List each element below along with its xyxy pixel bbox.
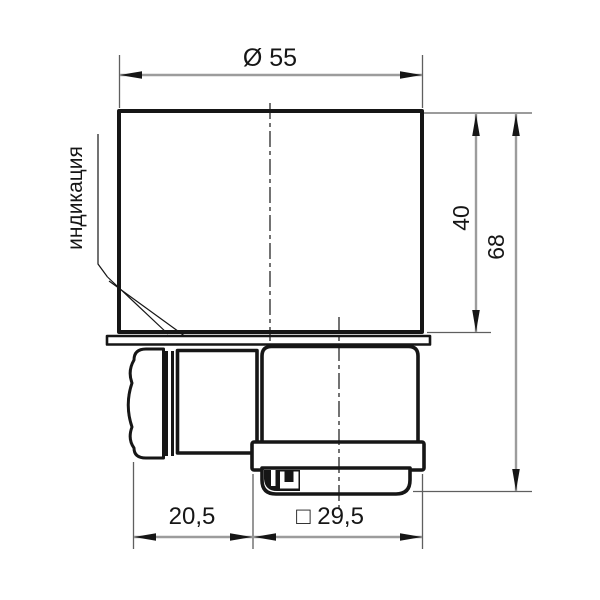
dimension-diameter: Ø 55 xyxy=(120,44,423,108)
dim-gland-offset-label: 20,5 xyxy=(169,503,216,530)
indication-label: индикация xyxy=(64,146,87,250)
cable-gland-nut xyxy=(128,349,163,458)
connector-flange xyxy=(252,442,424,470)
cable-gland-body xyxy=(178,351,258,454)
sensor-dimension-drawing: индикация Ø 55 40 68 20,5 xyxy=(0,0,600,600)
connector-keyway xyxy=(264,470,300,491)
dim-body-height-label: 40 xyxy=(448,205,474,231)
dim-connector-square-label: □ 29,5 xyxy=(296,503,364,530)
cable-gland-washer xyxy=(167,351,173,456)
technical-drawing: индикация Ø 55 40 68 20,5 xyxy=(0,0,600,600)
dimension-gland-offset: 20,5 xyxy=(134,462,254,549)
mounting-flange xyxy=(107,336,430,345)
connector-body xyxy=(262,347,418,445)
dim-diameter-label: Ø 55 xyxy=(243,44,297,72)
dim-total-height-label: 68 xyxy=(483,234,509,260)
dimension-total-height: 68 xyxy=(413,114,532,492)
